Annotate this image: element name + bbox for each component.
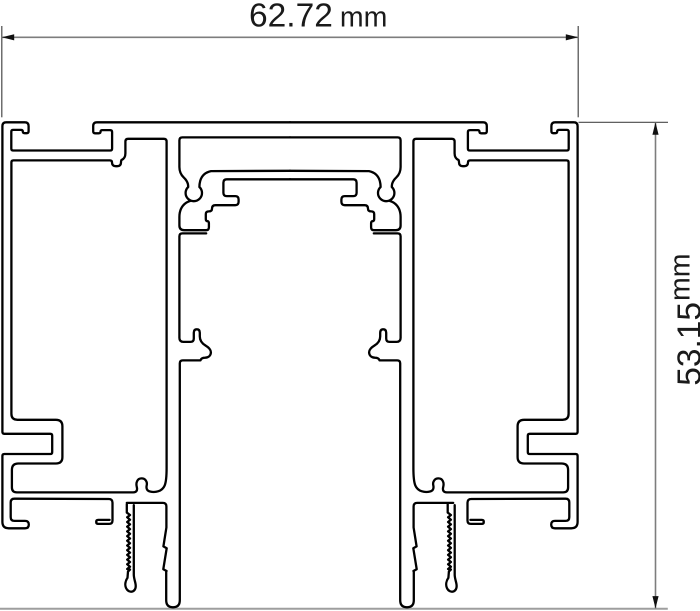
svg-text:62.72mm: 62.72mm bbox=[249, 0, 387, 35]
svg-text:53.15: 53.15 bbox=[671, 302, 700, 386]
svg-text:mm: mm bbox=[665, 254, 697, 301]
